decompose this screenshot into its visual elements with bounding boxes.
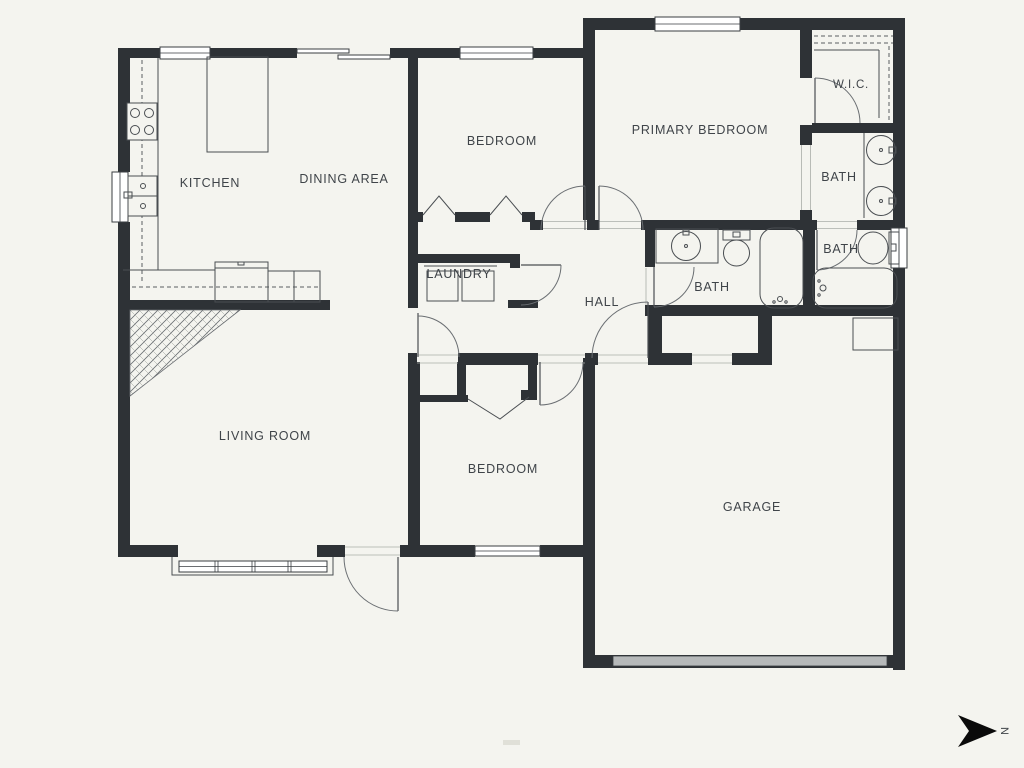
bay-window <box>172 557 333 575</box>
sink-icon <box>867 136 896 165</box>
north-label: N <box>998 727 1010 735</box>
floor-plan: KITCHEN DINING AREA BEDROOM PRIMARY BEDR… <box>0 0 1024 768</box>
toilet-icon <box>723 230 750 266</box>
room-label-bedroom-top: BEDROOM <box>467 134 537 148</box>
bifold-chevron-icon <box>490 196 522 215</box>
bathtub-icon <box>813 268 897 308</box>
bifold-chevron-icon <box>468 397 529 419</box>
room-label-hall: HALL <box>585 295 619 309</box>
bifold-chevron-icon <box>423 196 455 215</box>
room-label-primary-bedroom: PRIMARY BEDROOM <box>632 123 769 137</box>
room-label-living-room: LIVING ROOM <box>219 429 311 443</box>
room-label-bedroom-bottom: BEDROOM <box>468 462 538 476</box>
room-label-primary-bath: BATH <box>821 170 857 184</box>
windows <box>112 17 907 575</box>
room-label-laundry: LAUNDRY <box>426 267 491 281</box>
doors <box>344 78 860 611</box>
room-labels: KITCHEN DINING AREA BEDROOM PRIMARY BEDR… <box>180 79 869 514</box>
sink-icon <box>672 232 701 261</box>
room-label-garage: GARAGE <box>723 500 781 514</box>
pantry-cabinet <box>207 57 268 152</box>
fireplace-hatch <box>130 310 240 396</box>
wic-shelves <box>814 36 893 120</box>
garage-cabinet <box>853 318 898 350</box>
room-label-wic: W.I.C. <box>833 79 869 91</box>
room-label-dining: DINING AREA <box>299 172 388 186</box>
north-arrow-icon <box>958 715 997 747</box>
primary-bath-fixtures <box>864 133 896 218</box>
watermark-smudge <box>503 740 520 745</box>
hall-bath-fixtures <box>656 228 803 308</box>
bathtub-icon <box>760 228 803 308</box>
front-door <box>344 557 398 611</box>
sink-icon <box>867 187 896 216</box>
sliding-door <box>297 49 390 59</box>
kitchen-sink-icon <box>124 176 157 216</box>
room-label-kitchen: KITCHEN <box>180 176 240 190</box>
garage-door <box>613 656 887 666</box>
north-arrow: N <box>958 715 1010 747</box>
floor-plan-drawing: KITCHEN DINING AREA BEDROOM PRIMARY BEDR… <box>0 0 1024 768</box>
stove-icon <box>127 103 157 140</box>
cased-openings <box>345 145 857 555</box>
room-label-upper-bath: BATH <box>823 242 859 256</box>
kitchen-island <box>215 262 320 302</box>
room-label-hall-bath: BATH <box>694 280 730 294</box>
